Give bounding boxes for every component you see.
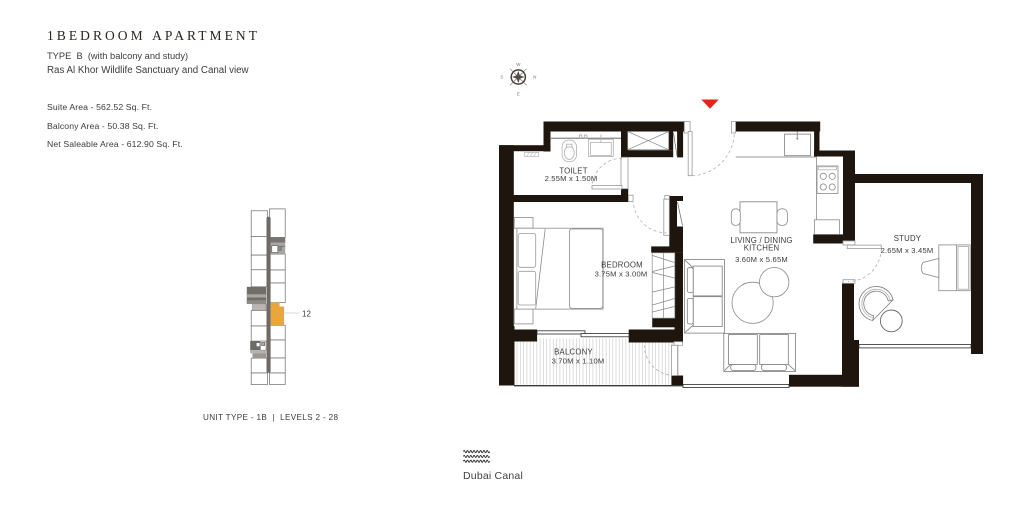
svg-text:N: N (533, 75, 536, 80)
svg-text:W: W (516, 62, 521, 67)
svg-text:3.75M x 3.00M: 3.75M x 3.00M (595, 270, 648, 279)
svg-text:BEDROOM: BEDROOM (601, 260, 643, 269)
svg-text:KITCHEN: KITCHEN (744, 244, 780, 253)
svg-text:S: S (500, 75, 503, 80)
svg-text:E: E (517, 92, 520, 97)
svg-text:3.60M x 5.65M: 3.60M x 5.65M (735, 255, 788, 264)
svg-text:BALCONY: BALCONY (554, 348, 593, 357)
svg-text:12: 12 (302, 309, 311, 318)
svg-text:STUDY: STUDY (894, 234, 922, 243)
svg-text:3.70M x 1.10M: 3.70M x 1.10M (552, 356, 605, 365)
svg-text:2.65M x 3.45M: 2.65M x 3.45M (881, 246, 934, 255)
svg-text:2.55M x 1.50M: 2.55M x 1.50M (545, 174, 598, 183)
